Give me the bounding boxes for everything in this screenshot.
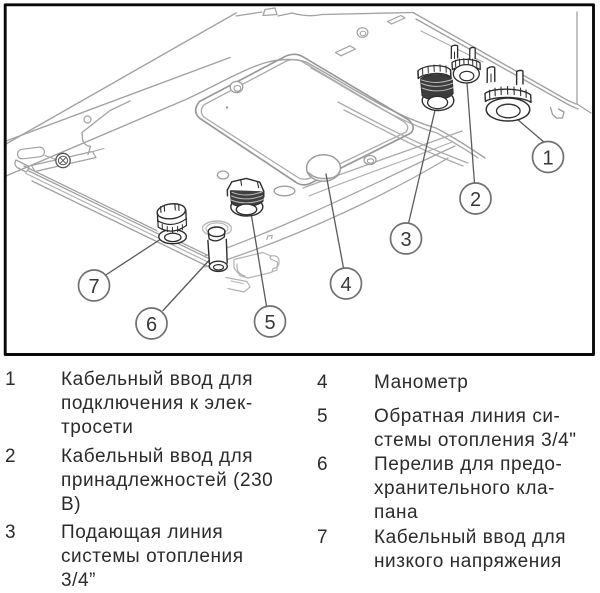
- svg-text:3: 3: [400, 229, 411, 251]
- svg-text:1: 1: [542, 147, 553, 169]
- svg-text:5: 5: [264, 312, 275, 334]
- svg-text:2: 2: [470, 189, 481, 211]
- svg-text:6: 6: [146, 314, 157, 336]
- svg-text:7: 7: [88, 276, 99, 298]
- svg-text:4: 4: [340, 274, 351, 296]
